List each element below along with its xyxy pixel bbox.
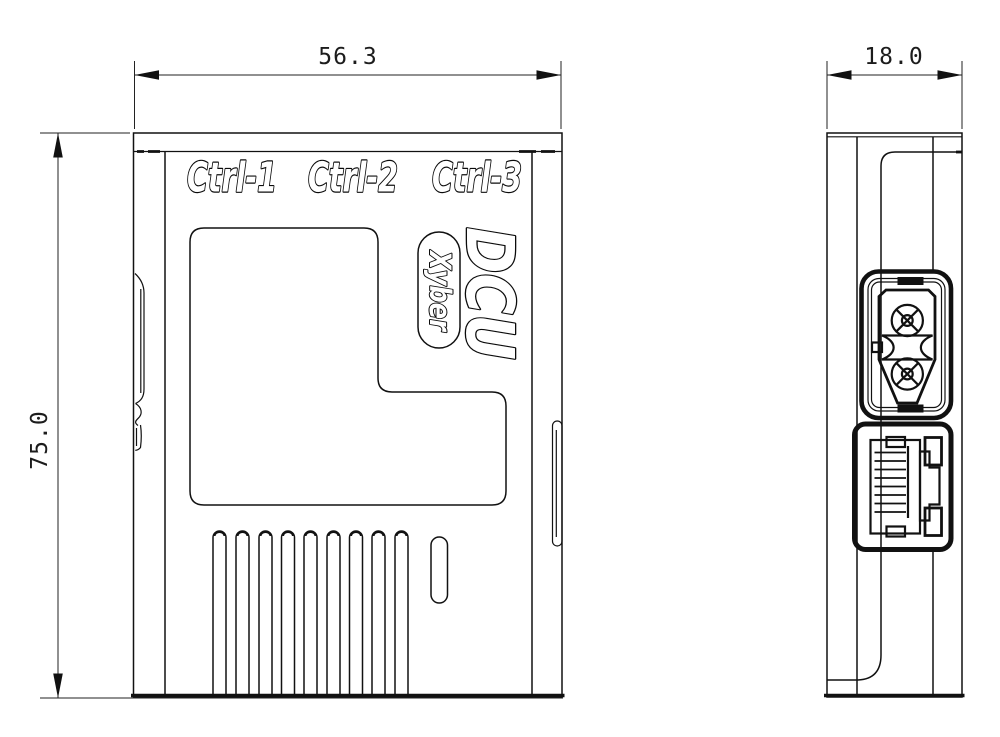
dimension-width-arrow-right <box>537 70 562 80</box>
port-label-ctrl3: Ctrl-3 <box>432 154 522 202</box>
ethernet-latch <box>920 452 940 521</box>
button-slot <box>431 537 448 603</box>
port-label-ctrl1: Ctrl-1 <box>187 154 277 202</box>
power-connector-bezel <box>862 272 952 419</box>
dimension-depth-value: 18.0 <box>864 44 923 70</box>
dimension-height-lines <box>40 133 563 698</box>
ethernet-tab-bottom <box>887 527 906 537</box>
ethernet-tab-top <box>887 437 906 447</box>
power-connector-pocket <box>879 290 935 403</box>
dimension-width-arrow-left <box>135 70 160 80</box>
power-keying-bowtie <box>882 336 933 360</box>
side-view <box>824 133 965 697</box>
vent-slots <box>213 531 408 694</box>
dimension-width-value: 56.3 <box>318 44 377 70</box>
power-bottom-latch <box>898 405 924 413</box>
dimension-width-lines <box>135 61 562 129</box>
power-pin-top-icon <box>892 305 923 336</box>
drawing-sheet: Ctrl-1 Ctrl-2 Ctrl-3 DCU Xyber <box>0 0 1000 737</box>
dimension-depth: 18.0 <box>827 44 962 129</box>
dimension-depth-arrow-left <box>827 70 852 80</box>
ethernet-pins <box>875 446 909 518</box>
front-body-outline <box>134 133 563 698</box>
dimension-height-arrow-top <box>53 133 63 158</box>
power-top-latch <box>898 277 924 285</box>
logo-text: DCU <box>451 227 528 360</box>
dimension-depth-arrow-right <box>938 70 963 80</box>
power-connector <box>862 272 952 419</box>
dimension-height-arrow-bottom <box>53 674 63 699</box>
port-label-ctrl2: Ctrl-2 <box>308 154 398 202</box>
technical-drawing-canvas: Ctrl-1 Ctrl-2 Ctrl-3 DCU Xyber <box>0 0 1000 737</box>
ethernet-tab-bottom-right <box>925 508 942 536</box>
right-mounting-clip <box>553 421 563 546</box>
power-pin-bottom-icon <box>892 358 923 389</box>
dimension-height-value: 75.0 <box>27 410 53 469</box>
ethernet-port <box>855 424 952 550</box>
front-view: Ctrl-1 Ctrl-2 Ctrl-3 DCU Xyber <box>131 133 565 698</box>
brand-text: Xyber <box>423 249 457 332</box>
dimension-width: 56.3 <box>135 44 562 129</box>
left-mounting-clip <box>135 274 144 451</box>
